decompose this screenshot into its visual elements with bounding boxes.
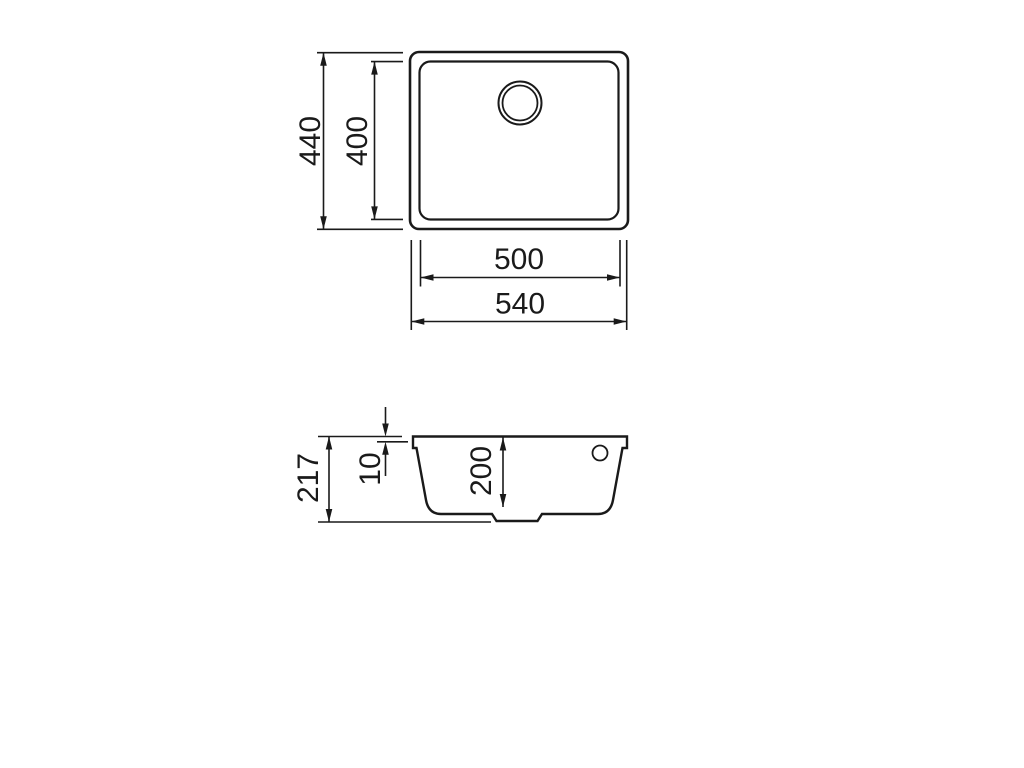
section-sink-profile (413, 437, 627, 522)
drain-hole-inner-circle (503, 86, 538, 121)
dimension-label-500: 500 (494, 243, 544, 276)
arrowhead-left (421, 274, 434, 281)
arrowhead-left (411, 318, 424, 325)
drawing-svg: 440 400 500 540 (0, 0, 1024, 768)
top-view (410, 52, 628, 229)
dimension-rim-height-10: 10 (354, 407, 408, 486)
arrowhead-down (371, 206, 378, 219)
dimension-inner-height-400: 400 (341, 62, 403, 220)
arrowhead-right (607, 274, 620, 281)
dimension-overall-height-217: 217 (292, 437, 491, 523)
arrowhead-up (371, 62, 378, 75)
arrowhead-down (320, 216, 327, 229)
dimension-label-400: 400 (341, 116, 374, 166)
arrowhead-down (500, 494, 507, 507)
arrowhead-up (320, 53, 327, 66)
arrowhead-right (614, 318, 627, 325)
dimension-inner-width-500: 500 (421, 240, 621, 287)
section-view (413, 437, 627, 522)
dimension-bowl-depth-200: 200 (465, 438, 506, 508)
arrowhead-down (382, 424, 389, 437)
dimension-label-440: 440 (294, 116, 327, 166)
dimension-label-10: 10 (354, 452, 387, 485)
dimension-label-217: 217 (292, 453, 325, 503)
dimension-label-540: 540 (495, 288, 545, 321)
sink-dimension-drawing: 440 400 500 540 (0, 0, 1024, 768)
overflow-hole-circle (593, 446, 608, 461)
drain-hole-outer-circle (499, 82, 542, 125)
arrowhead-down (326, 509, 333, 522)
dimension-label-200: 200 (465, 446, 498, 496)
arrowhead-up (326, 437, 333, 450)
top-view-outer-outline (410, 52, 628, 229)
arrowhead-up (500, 438, 507, 451)
